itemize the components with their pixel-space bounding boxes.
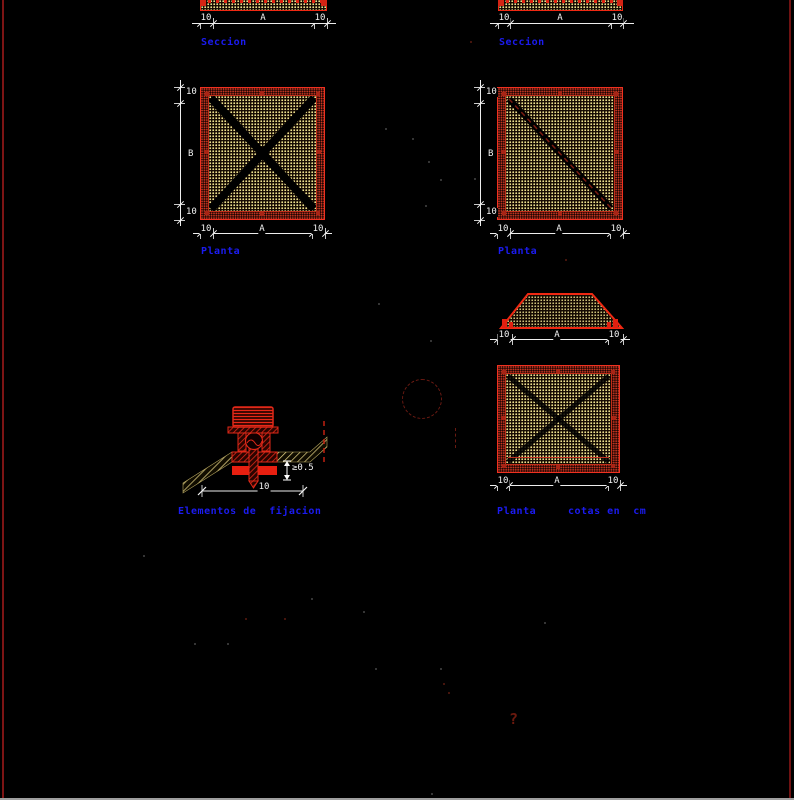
dim-label-a: A xyxy=(556,14,563,23)
stray-point xyxy=(440,179,442,181)
stray-point xyxy=(544,622,546,624)
fixing-mark xyxy=(260,91,264,95)
section-band-end xyxy=(617,0,623,6)
stray-point xyxy=(143,555,145,557)
stray-point xyxy=(448,692,450,694)
stray-point xyxy=(440,668,442,670)
stray-point xyxy=(412,138,414,140)
stray-point xyxy=(425,205,427,207)
diagonal-x-lines xyxy=(506,374,611,464)
dim-label-10: 10 xyxy=(610,225,623,234)
dim-label-10: 10 xyxy=(498,14,511,23)
caption-seccion: Seccion xyxy=(499,38,545,48)
stray-point xyxy=(311,598,313,600)
caption-planta: Planta xyxy=(498,247,537,257)
dim-label-10: 10 xyxy=(200,14,213,23)
dim-label-b: B xyxy=(487,150,494,159)
planta-square-inner xyxy=(505,95,615,212)
caption-cotas: cotas en cm xyxy=(568,507,646,517)
caption-seccion: Seccion xyxy=(201,38,247,48)
section-band-end xyxy=(498,0,504,6)
fixing-mark xyxy=(501,416,505,420)
dim-label-10: 10 xyxy=(312,225,325,234)
dim-label-10: 10 xyxy=(498,331,511,340)
fixing-mark xyxy=(205,211,209,215)
dim-label-10: 10 xyxy=(185,88,198,97)
dim-label-a: A xyxy=(553,477,560,486)
dim-label-10: 10 xyxy=(611,14,624,23)
fixing-mark xyxy=(502,370,506,374)
fixing-mark xyxy=(558,212,562,216)
fixing-mark xyxy=(204,150,208,154)
fixing-mark xyxy=(502,92,506,96)
stray-point xyxy=(378,303,380,305)
fixing-mark xyxy=(260,212,264,216)
diagonal-x-lines xyxy=(209,96,316,211)
stray-point xyxy=(443,683,445,685)
planta-square xyxy=(200,87,325,220)
dim-label-10: 10 xyxy=(200,225,213,234)
section-band-end xyxy=(200,0,206,6)
section-band-teeth xyxy=(200,0,327,3)
planta-square-inner xyxy=(505,373,612,465)
frame-left-line xyxy=(2,0,4,800)
bolt-flange xyxy=(228,427,278,433)
dim-label-a: A xyxy=(555,225,562,234)
section-band-teeth xyxy=(498,0,623,3)
dim-label-10: 10 xyxy=(314,14,327,23)
planta-square xyxy=(497,365,620,473)
trapezoid-shape xyxy=(495,290,630,332)
caption-elementos: Elementos de fijacion xyxy=(178,507,321,517)
stray-point xyxy=(245,618,247,620)
dim-label-a: A xyxy=(258,225,265,234)
planta-square-inner xyxy=(208,95,317,212)
fixing-mark xyxy=(614,211,618,215)
diagonal-line xyxy=(506,96,614,211)
bolt-head xyxy=(233,407,273,427)
stray-point xyxy=(375,668,377,670)
cad-drawing-canvas[interactable]: 10 A 10 Seccion 10 A 10 Seccion xyxy=(0,0,794,800)
dashed-circle xyxy=(402,379,442,419)
fixing-mark xyxy=(556,369,560,373)
section-band-end xyxy=(321,0,327,6)
stray-point xyxy=(428,161,430,163)
stray-point xyxy=(430,340,432,342)
dim-label-10: 10 xyxy=(608,331,621,340)
stray-point xyxy=(565,259,567,261)
fixing-mark xyxy=(558,91,562,95)
fixing-mark xyxy=(316,211,320,215)
caption-planta: Planta xyxy=(497,507,536,517)
dim-label-b: B xyxy=(187,150,194,159)
fixing-mark xyxy=(316,92,320,96)
stray-point xyxy=(385,128,387,130)
fixing-mark xyxy=(612,416,616,420)
dim-label-10: 10 xyxy=(497,225,510,234)
fixing-mark xyxy=(317,150,321,154)
stray-question-mark: ? xyxy=(509,712,518,727)
stray-point xyxy=(284,618,286,620)
fixing-mark xyxy=(502,464,506,468)
stray-point xyxy=(227,643,229,645)
neck-right xyxy=(262,433,270,451)
fixing-mark xyxy=(205,92,209,96)
dim-label-10: 10 xyxy=(185,208,198,217)
dim-label-10: 10 xyxy=(485,208,498,217)
inner-red-line xyxy=(508,457,609,458)
stray-point xyxy=(431,793,433,795)
fixing-mark xyxy=(611,464,615,468)
dim-label-a: A xyxy=(259,14,266,23)
dashed-segment xyxy=(455,428,456,448)
fixing-mark xyxy=(502,211,506,215)
fixing-mark xyxy=(501,150,505,154)
planta-square xyxy=(497,87,623,220)
stray-point xyxy=(470,41,472,43)
fixing-mark xyxy=(614,92,618,96)
dim-label-10: 10 xyxy=(485,88,498,97)
dim-label-10: 10 xyxy=(258,483,271,492)
dim-label-a: A xyxy=(553,331,560,340)
dim-label-thickness: ≥0.5 xyxy=(291,464,315,473)
fixing-mark xyxy=(615,150,619,154)
dim-label-10: 10 xyxy=(607,477,620,486)
screw-shaft xyxy=(249,445,258,481)
stray-point xyxy=(474,178,476,180)
frame-right-line xyxy=(789,0,791,800)
neck-left xyxy=(238,433,246,451)
caption-planta: Planta xyxy=(201,247,240,257)
dim-label-10: 10 xyxy=(497,477,510,486)
fixing-mark xyxy=(611,370,615,374)
fixing-mark xyxy=(556,465,560,469)
stray-point xyxy=(194,643,196,645)
stray-point xyxy=(363,611,365,613)
